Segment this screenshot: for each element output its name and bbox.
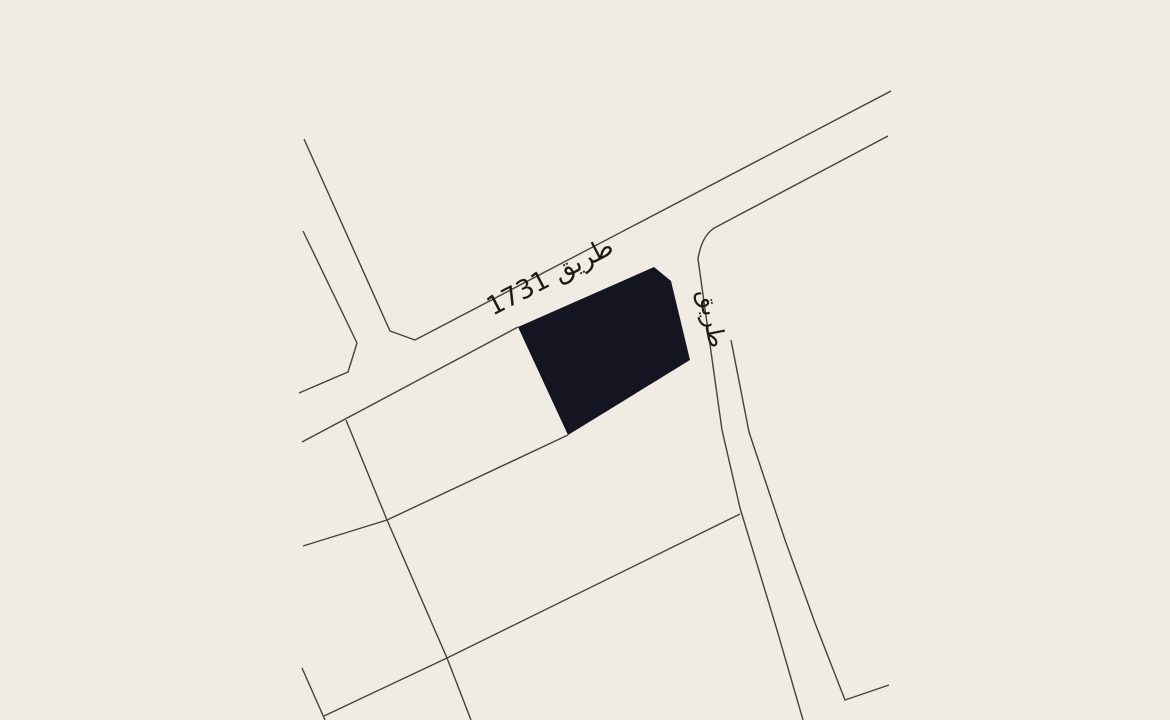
map-view[interactable]: طريق 1731 طريق xyxy=(0,0,1170,720)
side-road-right-edge xyxy=(731,340,889,700)
parcel-boundary-parallel-2 xyxy=(324,514,740,716)
main-road-lower-edge-west xyxy=(302,327,518,442)
parcel-boundary-stub xyxy=(302,668,325,720)
branch-road-left-edge xyxy=(299,231,357,393)
map-canvas[interactable]: طريق 1731 طريق xyxy=(0,0,1170,720)
parcel-boundary-perpendicular xyxy=(346,420,471,720)
parcel-boundary-parallel-1 xyxy=(303,435,568,546)
side-road-label: طريق xyxy=(692,287,731,350)
main-road-lower-edge-east-side-road-left-edge xyxy=(698,136,888,720)
